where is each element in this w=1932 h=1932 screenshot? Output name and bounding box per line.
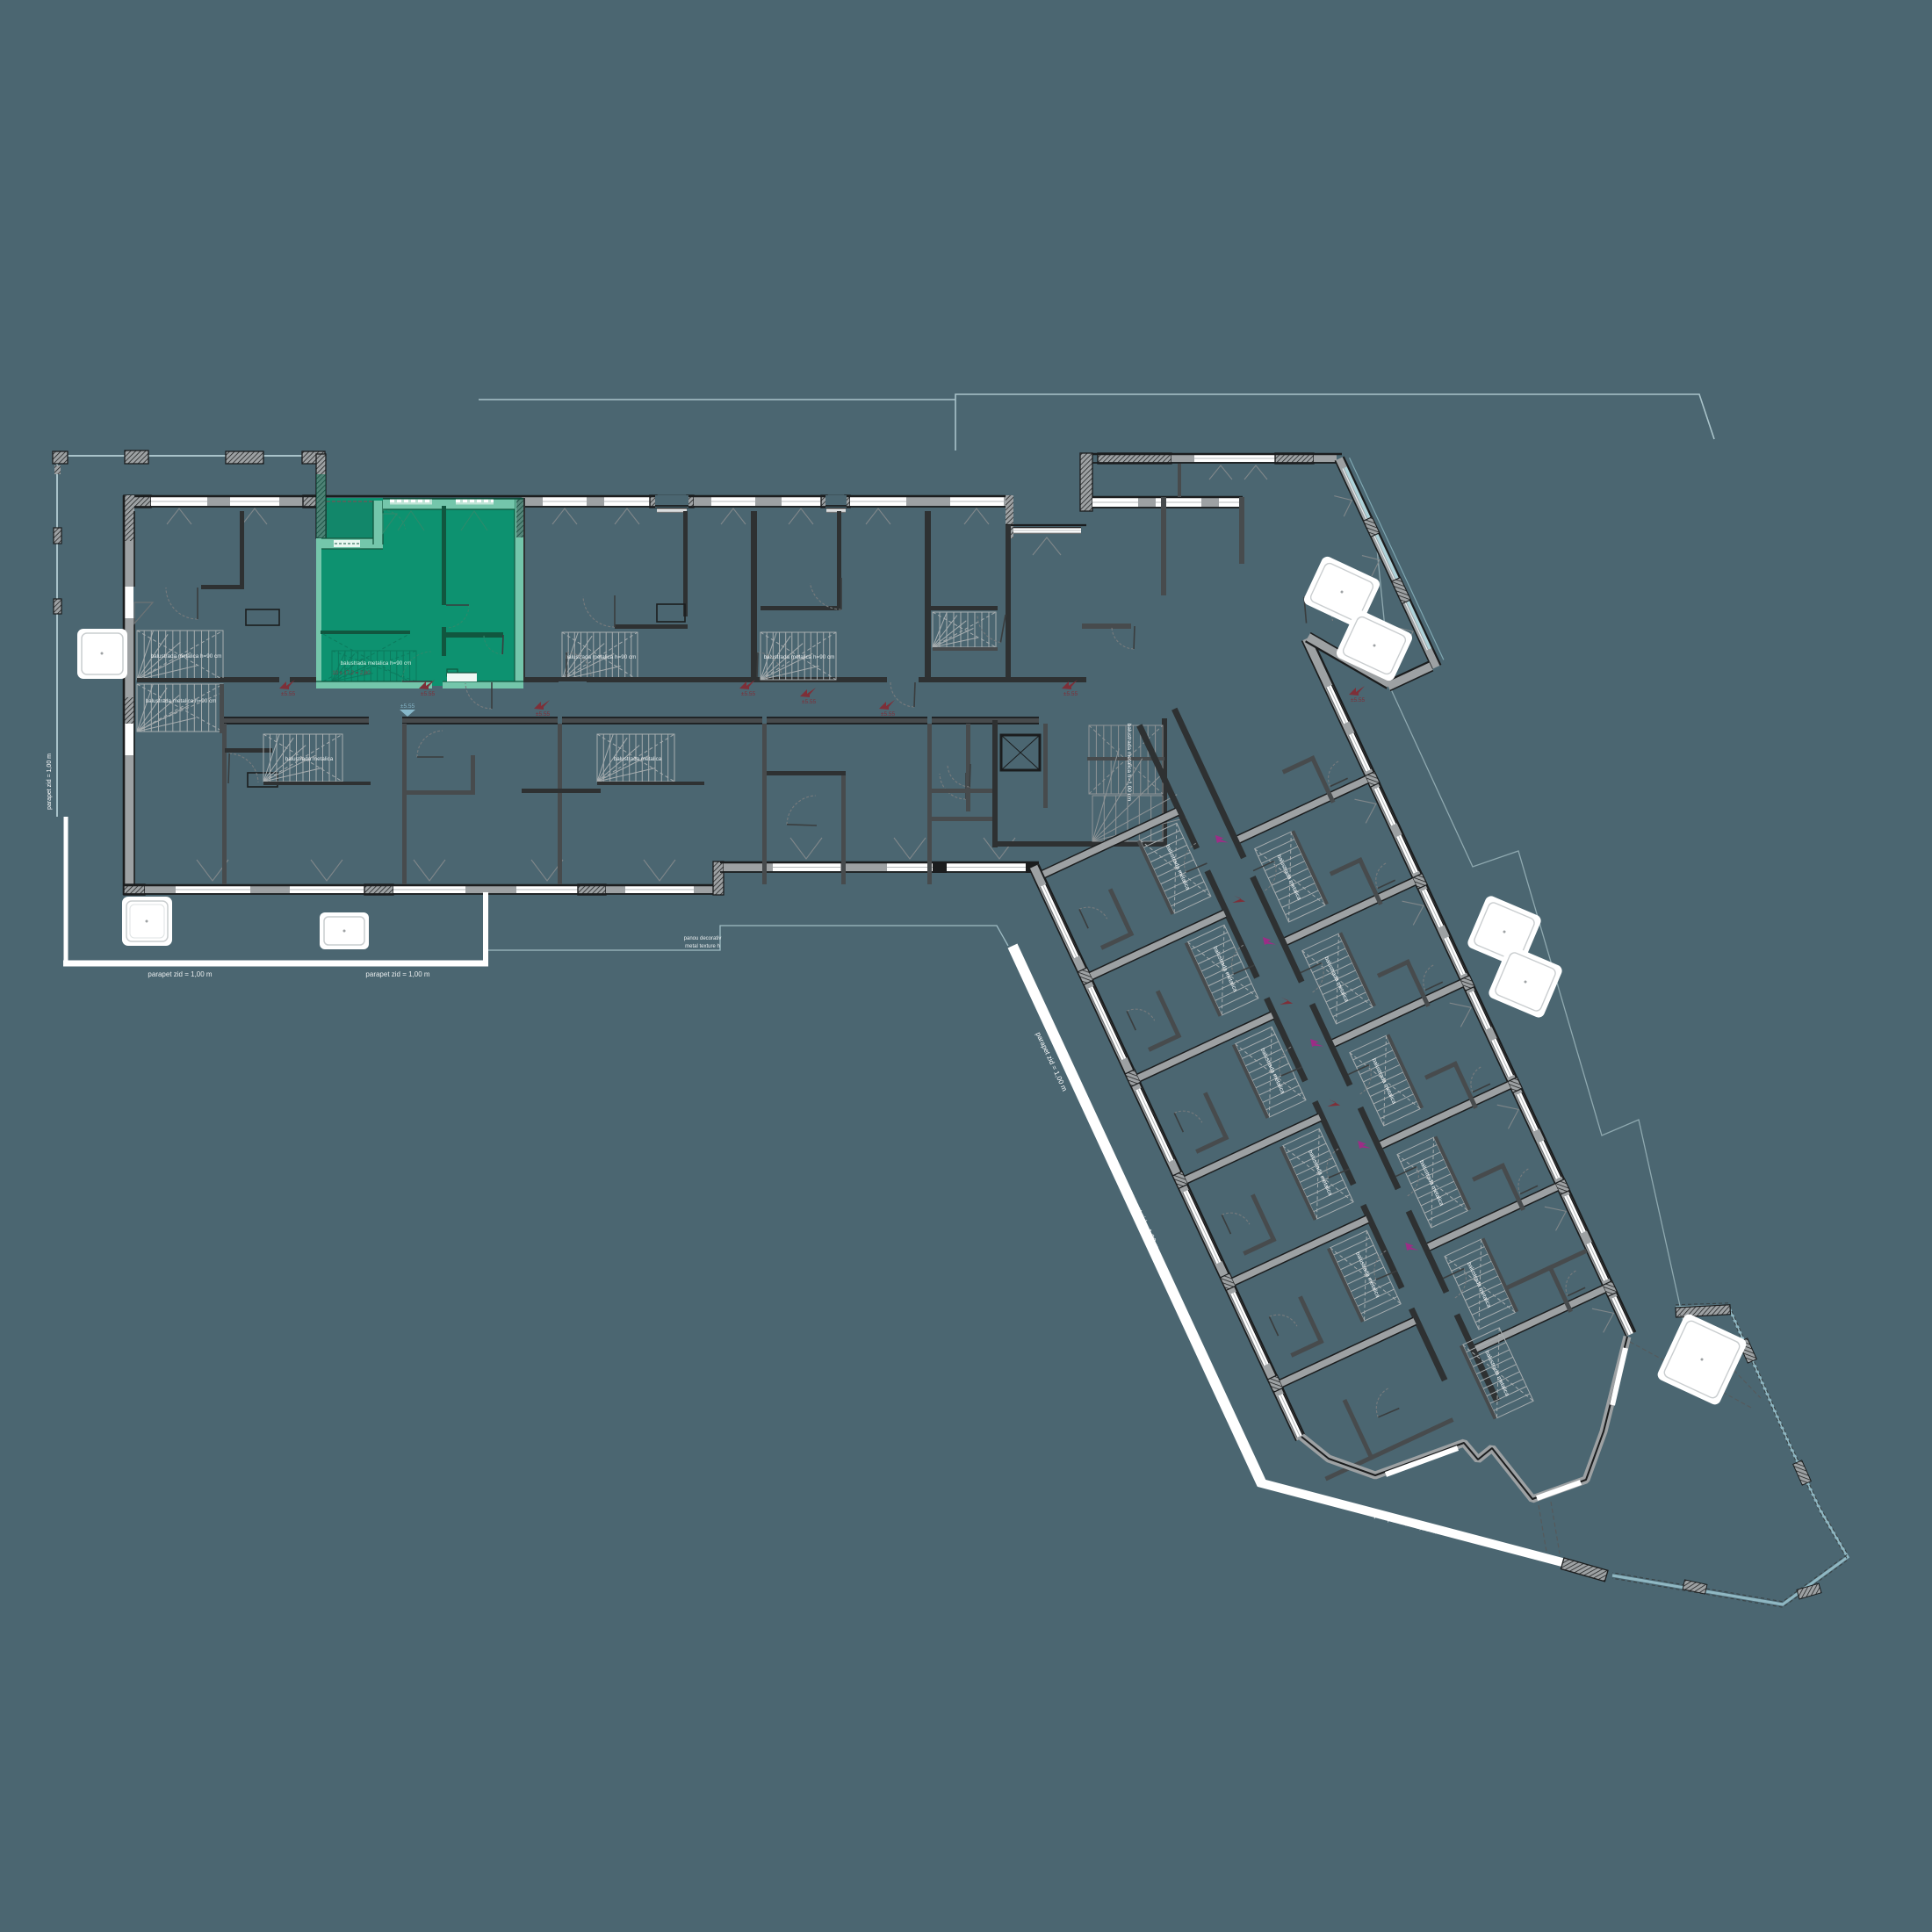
svg-text:balustrada metalica h=1,00 cm: balustrada metalica h=1,00 cm	[1126, 724, 1132, 802]
svg-text:balustrada metalica h=90 cm: balustrada metalica h=90 cm	[566, 654, 637, 660]
svg-text:±5.55: ±5.55	[1063, 691, 1078, 697]
svg-text:balustrada metalica: balustrada metalica	[285, 756, 334, 762]
svg-text:±5.55: ±5.55	[536, 711, 551, 717]
svg-text:±5.55: ±5.55	[802, 699, 817, 705]
svg-text:balustrada metalica h=90 cm: balustrada metalica h=90 cm	[341, 660, 412, 667]
svg-text:parapet zid = 1,00 m: parapet zid = 1,00 m	[365, 970, 429, 978]
svg-text:±5.55: ±5.55	[421, 691, 436, 697]
svg-text:parapet zid = 1,00 m: parapet zid = 1,00 m	[47, 753, 53, 810]
svg-text:panou decorativ: panou decorativ	[684, 936, 722, 941]
svg-text:balustrada metalica h=90 cm: balustrada metalica h=90 cm	[146, 698, 217, 704]
svg-text:balustrada metalica h=90 cm: balustrada metalica h=90 cm	[151, 653, 222, 660]
svg-text:±5.55: ±5.55	[400, 703, 415, 710]
svg-text:±5.55: ±5.55	[1351, 697, 1366, 703]
svg-text:parapet zid = 1,00 m: parapet zid = 1,00 m	[148, 970, 212, 978]
svg-text:±5.55: ±5.55	[881, 711, 896, 717]
svg-text:±5.55: ±5.55	[741, 691, 756, 697]
svg-text:10 x 17,2 = 2,80: 10 x 17,2 = 2,80	[332, 671, 371, 676]
svg-text:±5.55: ±5.55	[281, 691, 296, 697]
svg-text:balustrada metalica: balustrada metalica	[614, 756, 662, 762]
svg-text:metal texture h: metal texture h	[685, 944, 720, 949]
